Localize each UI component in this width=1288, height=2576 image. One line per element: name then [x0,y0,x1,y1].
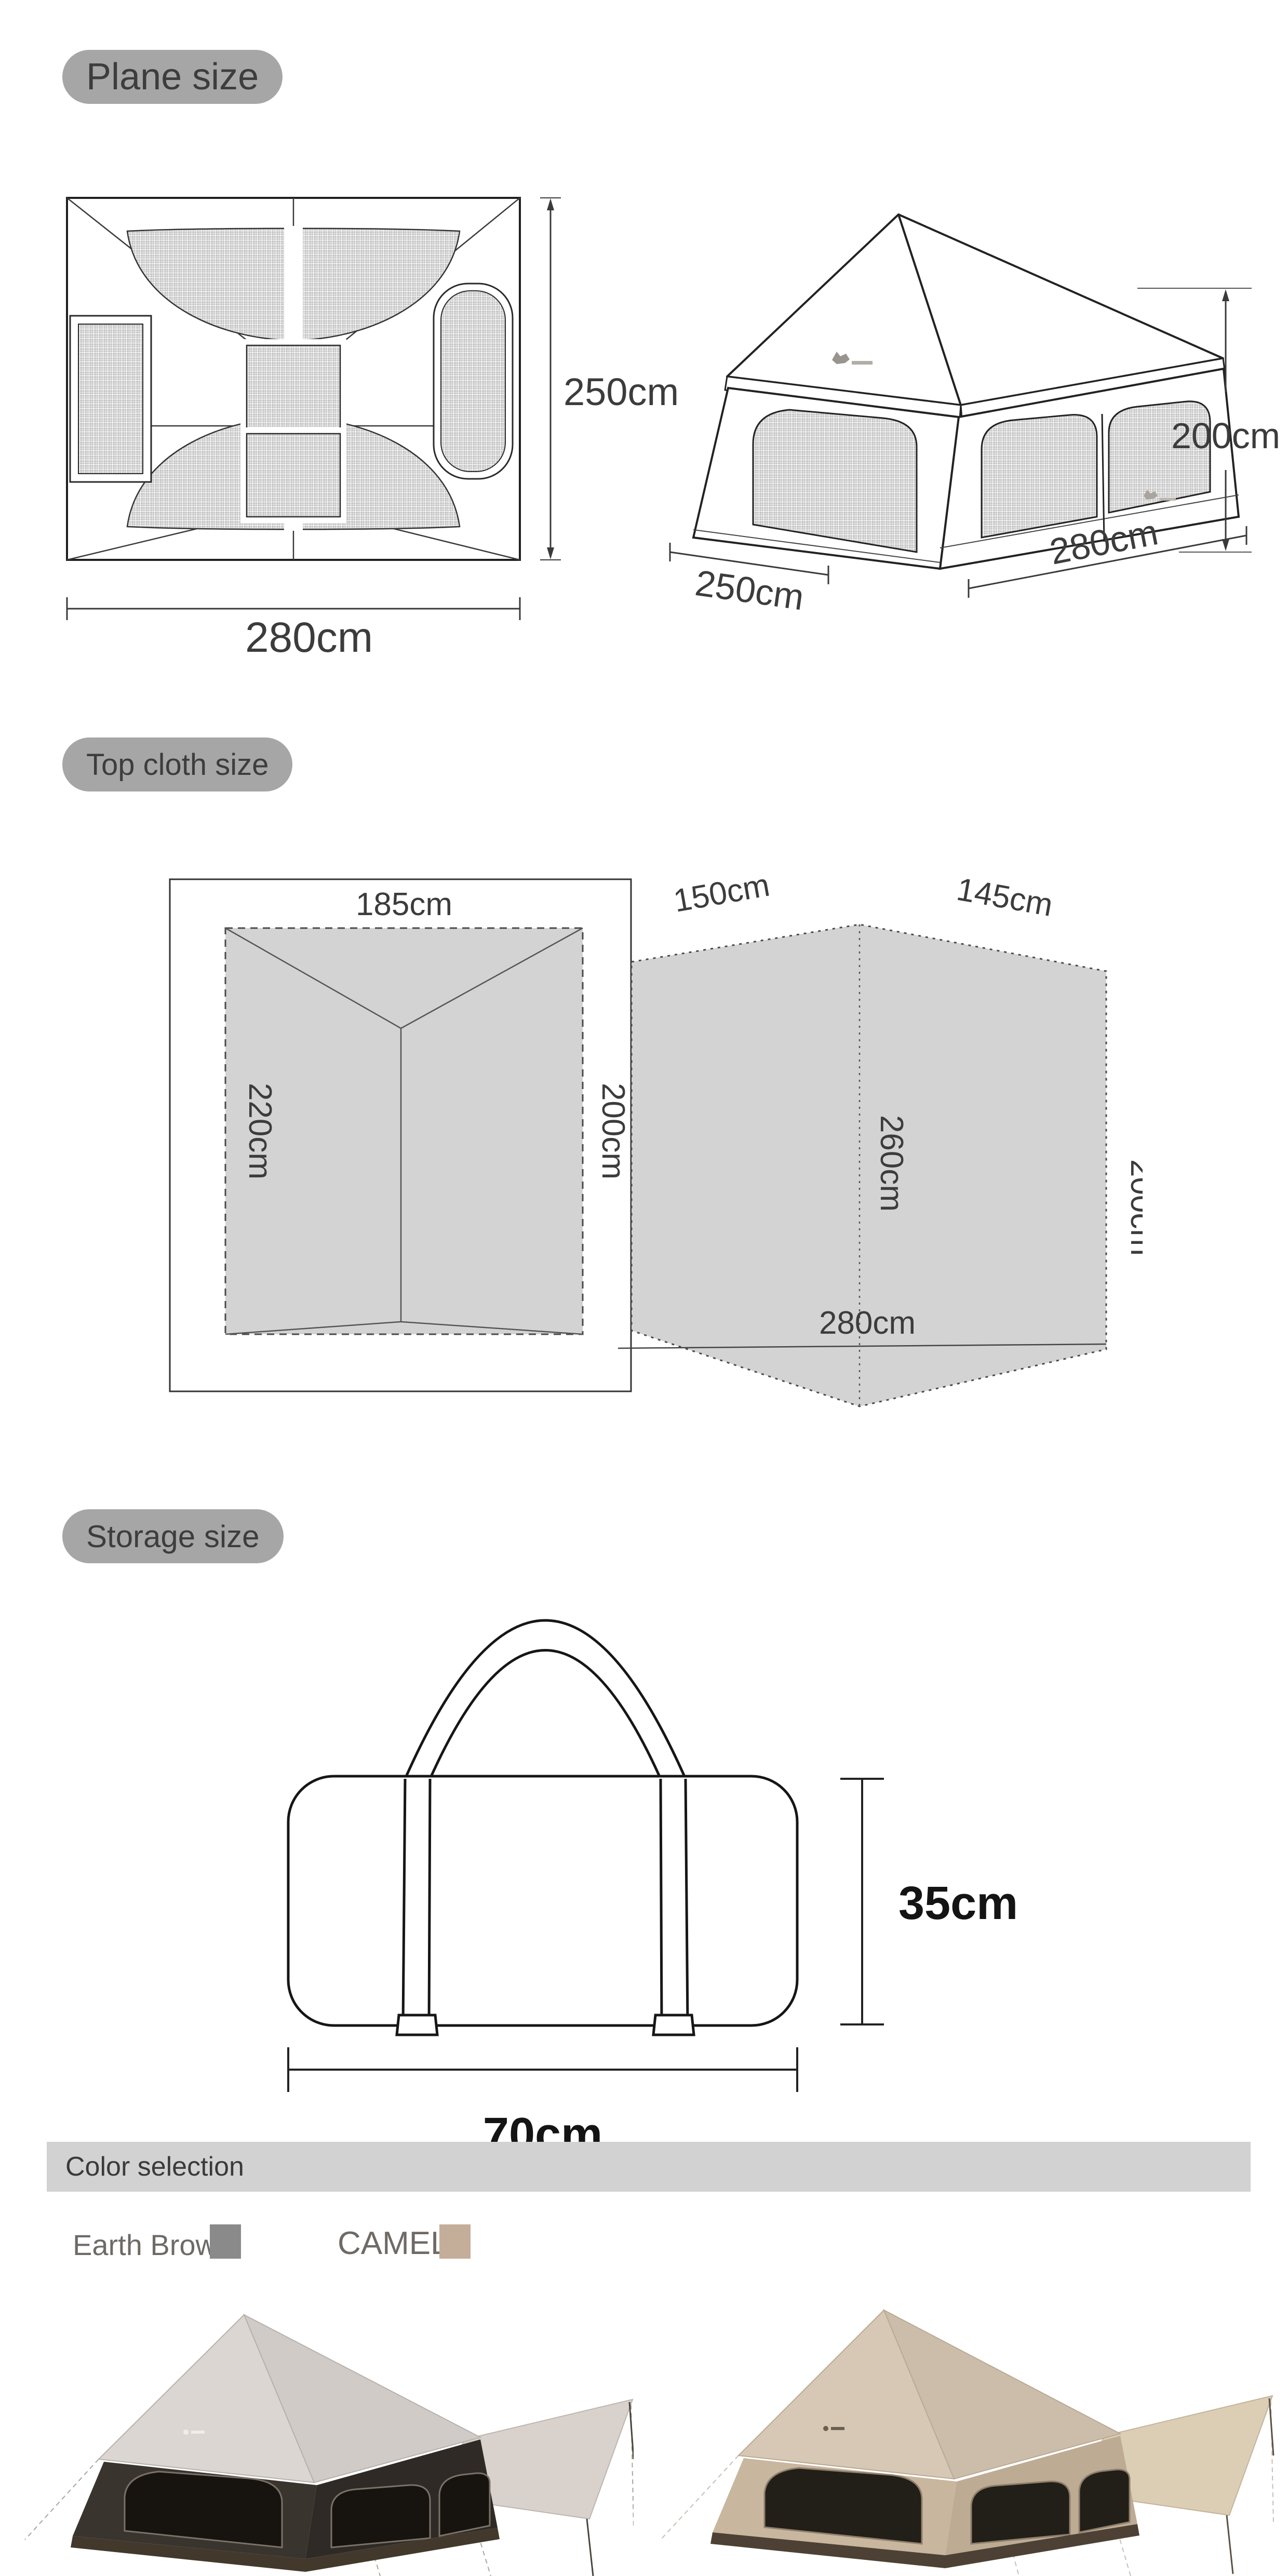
bag-height-dim [840,1779,884,2024]
awning-pole [587,2519,593,2576]
awning-pole [1227,2515,1233,2574]
arrow-down-icon [1222,539,1229,551]
product-page: { "badges": { "plane": "Plane size", "to… [0,0,1288,2576]
label-inner-right: 200cm [595,1083,631,1179]
label-outer-right: 200cm [1124,1159,1143,1256]
window-front-left [331,2485,430,2547]
color-option-label-camel: CAMEL [338,2225,449,2262]
mesh-window-left [78,324,143,474]
arrow-up-icon [1222,289,1229,301]
mesh-window-center-lower [247,434,340,517]
top-divider [284,226,303,344]
color-option-label-earth-brown: Earth Brown [73,2228,233,2262]
plane-perspective-diagram: 200cm 250cm 280cm [649,205,1288,615]
color-swatch-camel [439,2224,471,2259]
label-outer-top-right: 145cm [954,871,1055,923]
color-swatch-earth-brown [210,2224,241,2259]
color-selection-banner: Color selection [47,2142,1251,2192]
color-selection-title: Color selection [47,2151,244,2182]
window-front-right [439,2473,490,2536]
dim-label-side: 250cm [693,562,807,615]
mesh-window-center-upper [247,345,340,428]
label-outer-center: 260cm [874,1115,909,1212]
dim-label-width: 280cm [245,614,373,654]
mesh-window-door-left [982,415,1097,538]
badge-storage-size: Storage size [62,1509,284,1563]
bag-body [288,1776,797,2025]
tent-photo-camel [655,2295,1283,2576]
arrow-up-icon [547,198,554,210]
bag-handle [405,1620,686,1779]
window-front-right [1079,2470,1130,2532]
dim-label-bag-height: 35cm [898,1877,1018,1929]
bag-width-dim [288,2047,797,2092]
dim-label-height: 200cm [1171,415,1280,456]
cloth-inner-panel [225,928,583,1334]
label-outer-bottom: 280cm [819,1305,916,1341]
badge-plane-size: Plane size [62,50,283,104]
height-dimension-line [540,198,561,560]
label-inner-top: 185cm [356,887,452,922]
arrow-down-icon [547,547,554,559]
storage-bag-diagram: 35cm 70cm [234,1600,1039,2181]
label-outer-top-left: 150cm [671,867,772,919]
tent-photo-earth-brown [21,2303,634,2576]
label-inner-left: 220cm [242,1083,278,1179]
badge-top-cloth-size: Top cloth size [62,737,292,791]
mesh-window-right [441,291,505,472]
top-cloth-diagram: 185cm 220cm 200cm 150cm 145cm 260cm 200c… [156,852,1143,1475]
window-front-left [971,2481,1070,2544]
